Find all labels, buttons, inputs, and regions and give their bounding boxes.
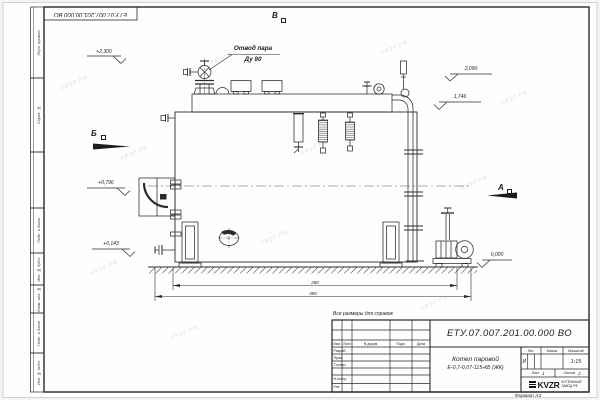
callout-du80: Ду 80 [226, 55, 280, 64]
top-stamp-cell: ЕТУ.07.007.201.00.000 ВО [44, 7, 137, 20]
elevation-0000: 0,000 [482, 251, 512, 258]
company-line2: ЗАВОД РФ [561, 385, 577, 389]
ground-line [148, 267, 478, 274]
view-arrows [93, 144, 517, 199]
row-razrab: Разраб. [334, 349, 347, 353]
view-ref-square [507, 189, 512, 194]
sheets-label: Листов [563, 371, 575, 375]
product-name-line2: Е-0,7-0,07-115-КБ (ЖК) [447, 365, 503, 371]
mass-label: Масса [541, 347, 563, 354]
margin-label-perv-primen: Перв. примен. [33, 7, 44, 78]
scale-label: Масштаб [563, 347, 589, 354]
view-label-b: Б [91, 129, 97, 138]
col-podp: Подп. [390, 341, 412, 348]
view-ref-square [281, 18, 286, 23]
front-box [139, 178, 175, 216]
row-utv: Утв. [334, 385, 341, 389]
top-stamp-text: ЕТУ.07.007.201.00.000 ВО [54, 11, 127, 17]
callout-steam-outlet: Отвод пара [226, 44, 280, 53]
drum-cap-1 [231, 81, 251, 95]
elevation-0143: +0,143 [92, 240, 130, 247]
elevation-2090: 2,090 [450, 65, 492, 72]
margin-label-inv-dubl: Инв. № дубл. [33, 253, 44, 285]
format-label: Формат А3 [495, 393, 561, 400]
elevation-0796: +0,796 [87, 179, 125, 186]
manhole [218, 228, 240, 248]
elevation-1746: 1,746 [439, 93, 481, 100]
elevation-2300: +2,300 [86, 48, 122, 55]
col-data: Дата [412, 341, 430, 348]
margin-label-podp-data-1: Подп. и дата [33, 208, 44, 253]
left-flanges [171, 180, 182, 236]
support-right [380, 222, 402, 267]
margin-label-empty [33, 152, 44, 208]
steam-outlet-valve [184, 58, 216, 96]
feed-pump-unit [433, 208, 473, 267]
elevation-marks [87, 56, 512, 268]
view-ref-square [101, 135, 106, 140]
row-prov: Пров. [334, 356, 344, 360]
support-left [179, 222, 201, 267]
row-tkontr: Т.контр. [334, 363, 347, 367]
boiler-side-view [139, 58, 478, 274]
lit-value: И [521, 354, 528, 369]
downcomer-pipe [392, 61, 424, 261]
safety-valve-group [363, 82, 385, 94]
boiler-shell [175, 112, 417, 262]
lit-label: Лит. [521, 347, 541, 354]
margin-label-inv-podl: Инв. № подл. [33, 353, 44, 392]
margin-label-vzam-inv: Взам. инв. № [33, 285, 44, 313]
dim-upper: 280 [295, 279, 335, 285]
drain-valve [155, 245, 175, 255]
logo-text: KVZR [538, 380, 560, 390]
company-logo-cell: KVZR КОТЕЛЬНЫЙ ЗАВОД РФ [521, 377, 589, 392]
drawing-sheet-page: { "sheet": { "top_stamp": "ЕТУ.07.007.20… [0, 0, 600, 400]
doc-number: ЕТУ.07.007.201.00.000 ВО [430, 320, 589, 347]
drum-dome [216, 88, 229, 94]
margin-label-podp-data-2: Подп. и дата [33, 313, 44, 353]
dim-lower: 390 [293, 290, 333, 296]
sheet-value: 1 [542, 371, 545, 376]
view-label-v: В [272, 11, 278, 20]
col-list: Лист [342, 341, 352, 348]
logo-bars-icon [529, 380, 536, 389]
product-name-line1: Котел паровой [452, 356, 499, 363]
upper-drum [192, 94, 392, 112]
col-ndokum: N докум. [352, 341, 390, 348]
col-izm: Изм. [332, 341, 342, 348]
row-nkontr: Н.контр. [334, 377, 348, 381]
view-label-a: А [498, 183, 504, 192]
product-name-cell: Котел паровой Е-0,7-0,07-115-КБ (ЖК) [430, 348, 521, 378]
margin-label-sprav-no: Справ. № [33, 78, 44, 152]
reference-note: Все размеры для справок [333, 311, 393, 317]
left-top-valve [161, 114, 175, 122]
view-a-arrow [487, 193, 517, 199]
sheets-total-cell: Листов 2 [555, 369, 589, 377]
sheet-label: Лист [531, 371, 539, 375]
view-b-arrow [93, 144, 130, 150]
sheet-number-cell: Лист 1 [521, 369, 555, 377]
drum-cap-2 [262, 81, 282, 95]
scale-value: 1:15 [563, 354, 589, 369]
level-gauge-2 [346, 113, 355, 151]
level-gauge-1 [319, 113, 328, 153]
sheets-value: 2 [578, 371, 581, 376]
sight-glass [293, 114, 304, 154]
